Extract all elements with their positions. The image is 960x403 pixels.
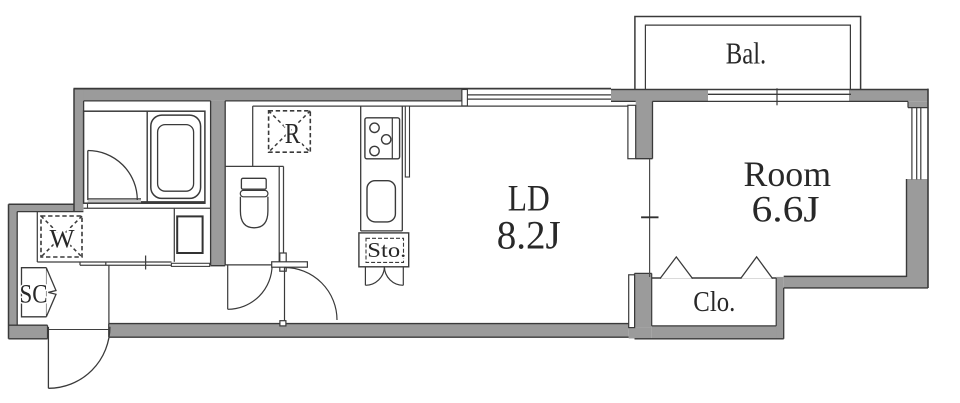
svg-text:R: R [285, 119, 301, 150]
svg-text:W: W [50, 224, 75, 254]
svg-text:6.6J: 6.6J [752, 190, 820, 231]
svg-text:8.2J: 8.2J [497, 213, 561, 258]
svg-text:SC: SC [20, 279, 48, 308]
svg-text:Room: Room [744, 154, 832, 194]
svg-text:Clo.: Clo. [693, 287, 735, 318]
svg-text:Bal.: Bal. [726, 35, 767, 70]
svg-text:Sto.: Sto. [367, 238, 406, 262]
